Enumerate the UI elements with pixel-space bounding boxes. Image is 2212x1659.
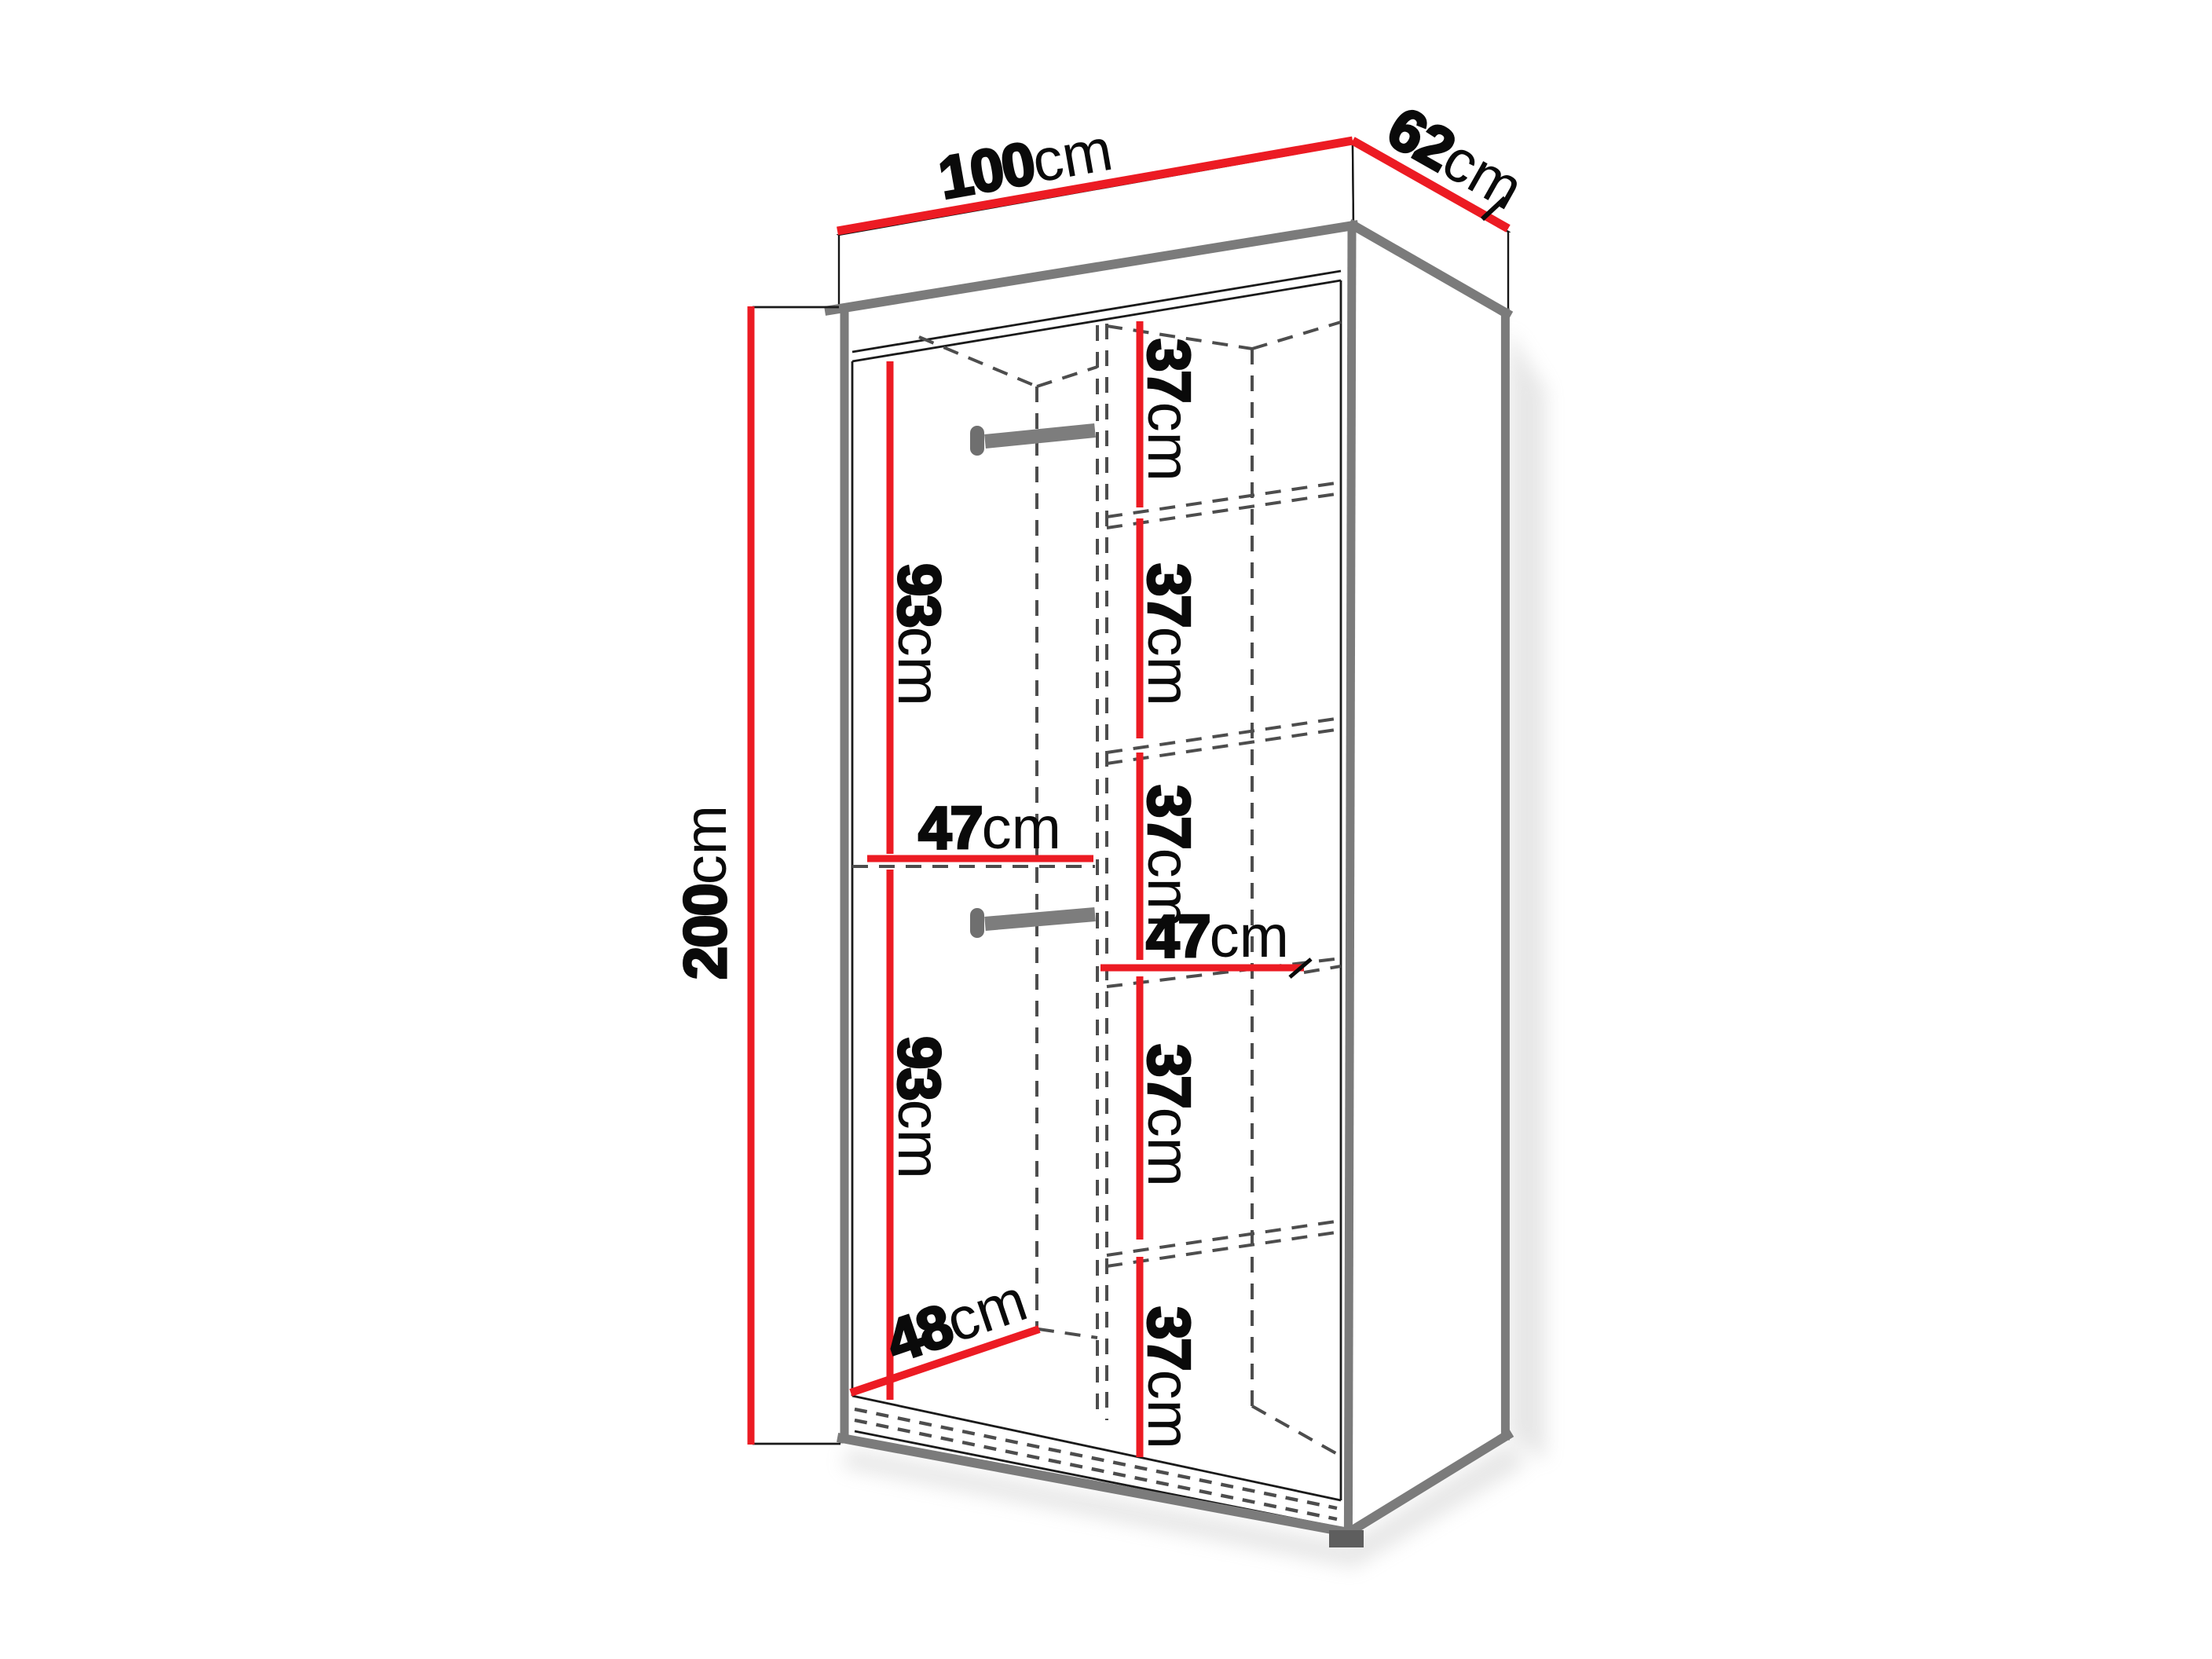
hanging-rod-lower	[985, 914, 1095, 924]
dim-label-left-upper: 93cm	[885, 563, 952, 706]
dim-label-right-gap-2: 37cm	[1135, 563, 1202, 706]
cabinet-side-face	[1349, 223, 1506, 1532]
dim-label-height: 200cm	[672, 805, 739, 980]
dim-label-right-gap-4: 37cm	[1135, 1044, 1202, 1187]
dim-label-right-gap-1: 37cm	[1135, 339, 1202, 482]
dim-label-right-gap-5: 37cm	[1135, 1306, 1202, 1449]
extension-lines	[753, 307, 840, 1444]
foot	[1329, 1530, 1364, 1547]
hanging-rod-upper-cap	[970, 426, 984, 456]
dim-label-left-shelf-width: 47cm	[918, 795, 1061, 862]
wardrobe-diagram: 100cm 62cm 200cm 93cm 47cm 93cm 48cm 47c…	[0, 0, 2212, 1659]
front-right-edge	[1348, 228, 1352, 1530]
dim-label-right-gap-3: 37cm	[1135, 785, 1202, 928]
dim-label-left-lower: 93cm	[885, 1036, 952, 1179]
hanging-rod-lower-cap	[970, 908, 984, 938]
wardrobe-diagram-stage: 100cm 62cm 200cm 93cm 47cm 93cm 48cm 47c…	[0, 0, 2212, 1659]
